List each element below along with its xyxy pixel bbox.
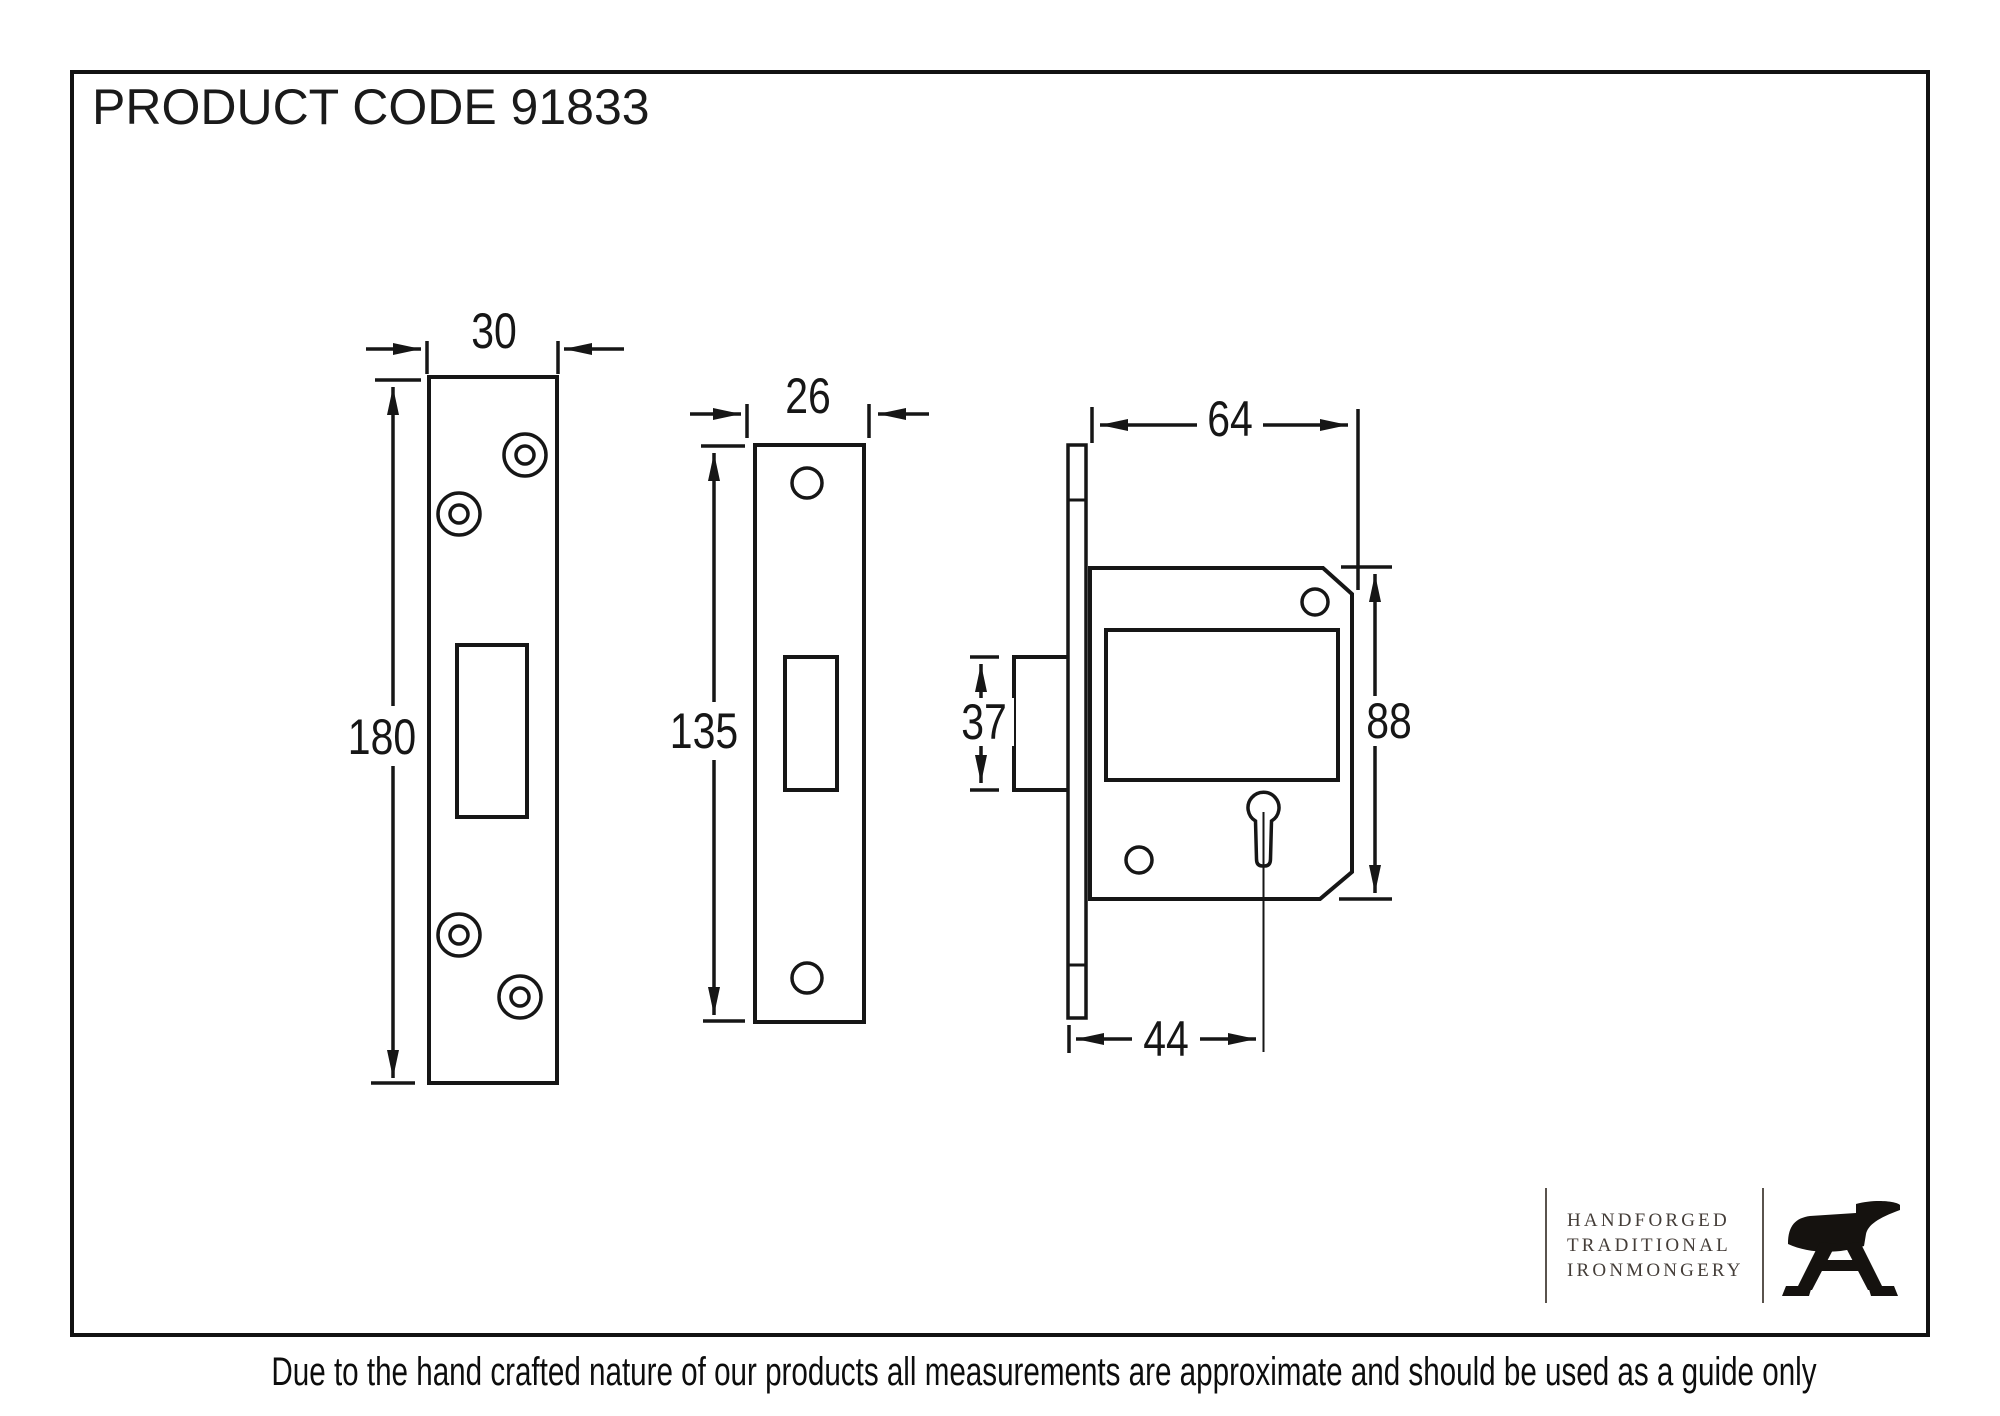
- logo-line-3: IRONMONGERY: [1567, 1258, 1744, 1283]
- faceplate-screw-holes: [792, 468, 822, 993]
- dim-label-88: 88: [1366, 693, 1412, 749]
- keep-plate-outline: [429, 377, 557, 1083]
- dim-label-30: 30: [471, 303, 517, 359]
- keep-plate-bolt-cutout: [457, 645, 527, 817]
- logo-line-2: TRADITIONAL: [1567, 1233, 1744, 1258]
- lock-case-view: [1014, 445, 1352, 1052]
- anvil-icon: [1778, 1188, 1902, 1303]
- dim-keep-width: 30: [366, 303, 624, 374]
- brand-logo: HANDFORGED TRADITIONAL IRONMONGERY: [1545, 1188, 1902, 1303]
- dim-label-44: 44: [1143, 1011, 1189, 1067]
- dim-label-135: 135: [670, 703, 738, 759]
- disclaimer-text: Due to the hand crafted nature of our pr…: [271, 1350, 1816, 1395]
- dim-faceplate-width: 26: [690, 368, 929, 438]
- logo-line-1: HANDFORGED: [1567, 1208, 1744, 1233]
- logo-divider-rule: [1762, 1188, 1764, 1303]
- deadbolt: [1014, 657, 1069, 790]
- dim-label-180: 180: [348, 709, 416, 765]
- dim-bolt-height: 37: [952, 657, 1014, 790]
- keep-plate-view: [429, 377, 557, 1083]
- faceplate-outline: [755, 445, 864, 1022]
- dim-label-26: 26: [785, 368, 831, 424]
- page: PRODUCT CODE 91833 30: [0, 0, 2000, 1416]
- keep-plate-screw-holes: [438, 434, 546, 1018]
- faceplate-view: [755, 445, 864, 1022]
- faceplate-edge-strip: [1068, 445, 1086, 1018]
- dim-faceplate-height: 135: [652, 446, 752, 1021]
- dim-keep-height: 180: [337, 380, 427, 1083]
- logo-wordmark: HANDFORGED TRADITIONAL IRONMONGERY: [1547, 1188, 1762, 1303]
- dim-label-64: 64: [1207, 391, 1253, 447]
- faceplate-bolt-cutout: [785, 657, 837, 790]
- dim-label-37: 37: [961, 694, 1007, 750]
- footer: Due to the hand crafted nature of our pr…: [0, 1350, 2000, 1395]
- dim-case-depth: 64: [1092, 391, 1358, 590]
- dim-backset: 44: [1069, 1011, 1256, 1067]
